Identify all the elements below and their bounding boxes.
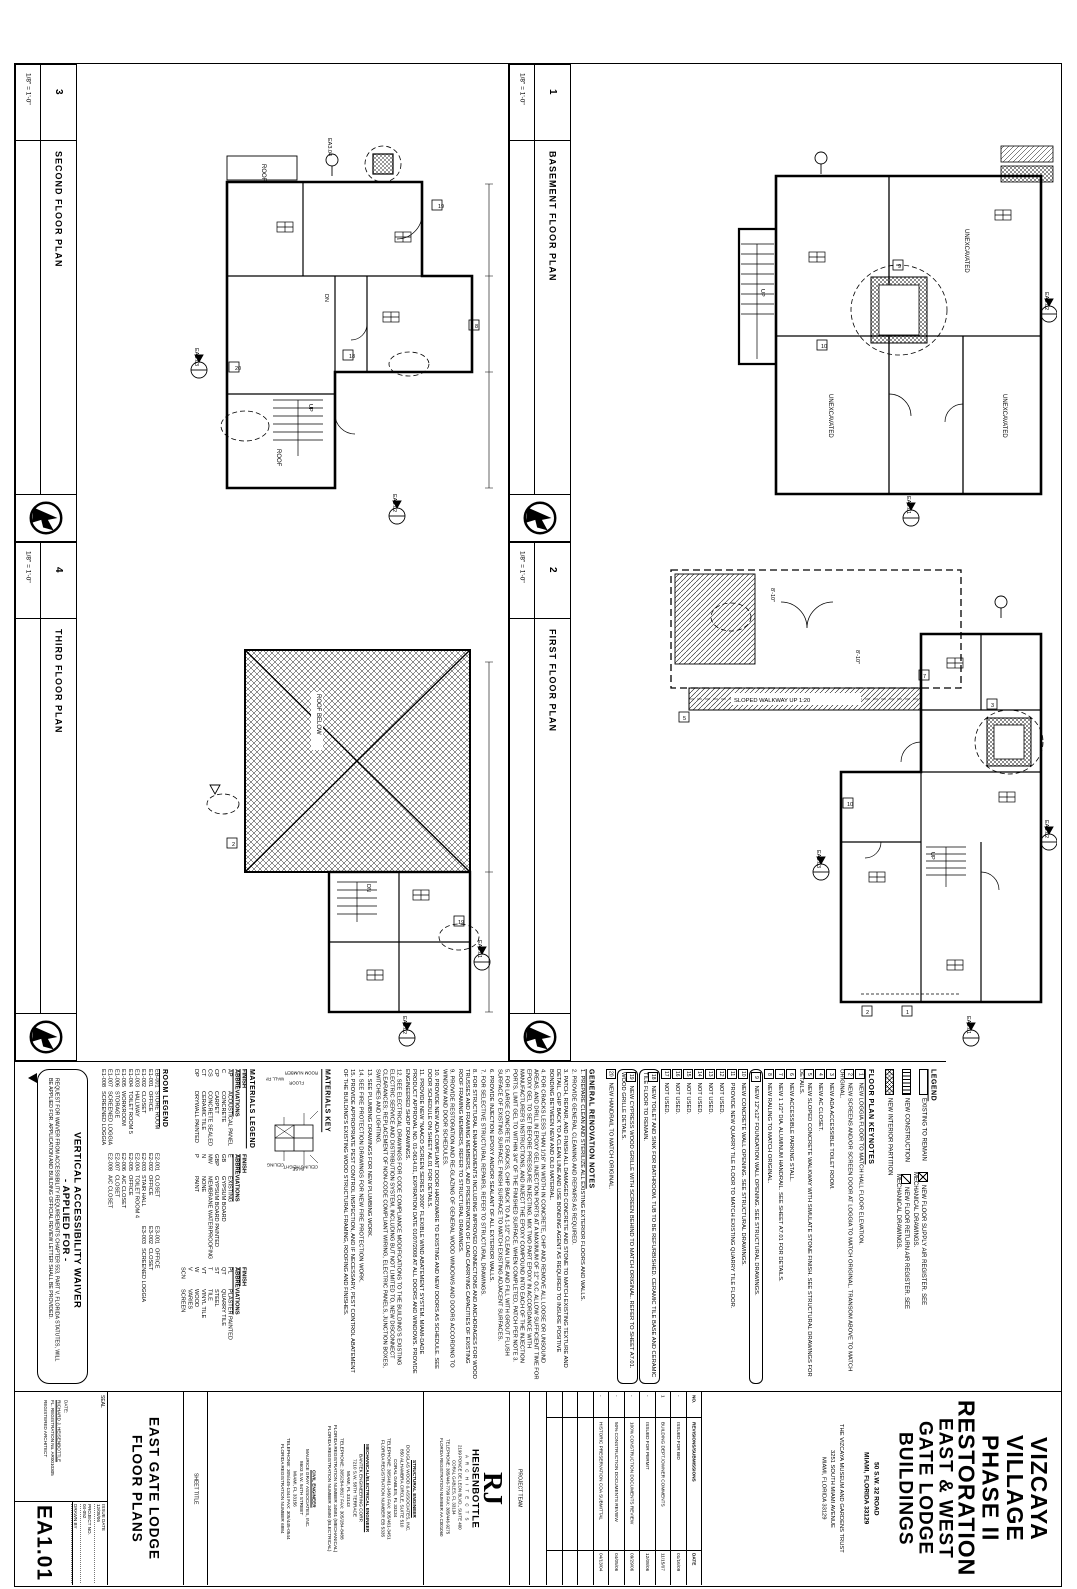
svg-text:CEILING: CEILING xyxy=(266,1163,284,1168)
keynote-number: 9 xyxy=(751,1072,761,1082)
keynote-text: PROVIDE NEW QUARRY TILE FLOOR TO MATCH E… xyxy=(729,1083,735,1309)
north-arrow-icon xyxy=(510,1013,570,1060)
material-entry: CTCERAMIC TILE xyxy=(199,1069,206,1146)
revisions-header: NO. REVISIONS/SUBMISSIONS DATE xyxy=(686,1392,702,1585)
keynote-text: NEW 1 1/2" DIA. ALUMINUM HANDRAIL. SEE S… xyxy=(777,1083,783,1282)
basement-plan-drawing: UNEXCAVATED UNEXCAVATED UNEXCAVATED UP 9… xyxy=(571,64,1061,542)
keynote-text: NEW 12"x12" FOUNDATION WALL OPENING. SEE… xyxy=(753,1086,759,1296)
svg-text:EA3.02: EA3.02 xyxy=(1043,292,1049,310)
svg-text:DN: DN xyxy=(365,884,371,892)
material-entry: CPCARPET xyxy=(212,1069,219,1146)
keynote-item: 20 NEW HANDRAIL TO MATCH ORIGINAL. xyxy=(606,1069,616,1381)
drawing-sheet: 1/8" = 1'-0" 3 SECOND FLOOR PLAN xyxy=(14,63,1062,1587)
materials-legend-section: MATERIALS LEGEND FINISH ABBREVIATIONS AP… xyxy=(179,1069,255,1384)
keynote-number: 16 xyxy=(672,1069,682,1079)
svg-text:EA3.01: EA3.01 xyxy=(476,940,482,958)
svg-text:10: 10 xyxy=(847,802,853,808)
revision-row: - 100% CONSTRUCTION DOCUMENTS REVIEW 09/… xyxy=(624,1392,640,1585)
room-entry: E1-007SCREENED LOGGIA xyxy=(106,1069,113,1145)
materials-legend-col-1: FINISH ABBREVIATIONS APACOUSTICAL PANELC… xyxy=(179,1069,247,1146)
room-entry: E1-002CLOSET xyxy=(139,1069,146,1145)
general-note: 1. PREPARE CLEAN AND STERILIZE ALL EXIST… xyxy=(578,1069,585,1381)
room-entry: E2-002OFFICE xyxy=(146,1153,153,1218)
materials-key-diagram: ROOM NUMBER FLOOR WALL FINISH CEILING HE… xyxy=(266,1069,322,1219)
svg-text:EA3.01: EA3.01 xyxy=(965,1016,971,1034)
room-entry: E2-003STAIR HALL xyxy=(139,1153,146,1218)
material-entry: PPAINT xyxy=(192,1154,199,1259)
project-name-2: EAST & WEST GATE LODGE BUILDINGS xyxy=(895,1398,955,1579)
svg-text:3: 3 xyxy=(991,703,994,709)
legend-title: LEGEND xyxy=(928,1069,936,1382)
room-entry: E1-001OFFICE xyxy=(146,1069,153,1145)
consultant-line: BANTEK ENGINEERING CORP. xyxy=(357,1400,363,1577)
keynote-item: 10 NEW CONCRETE WALL OPENING. SEE STRUCT… xyxy=(738,1069,748,1381)
consultant-line: FLORIDA REGISTRATION NUMBER 34580 (ELECT… xyxy=(326,1400,332,1577)
keynotes-list: 1 NEW LOGGIA FLOOR TO MATCH HALL FLOOR E… xyxy=(606,1069,866,1384)
mep-engineer: MECHANICAL/ELECTRICAL ENGINEER BANTEK EN… xyxy=(326,1400,370,1577)
keynote-item: 14 NOT USED. xyxy=(694,1069,704,1381)
room-legend-group-1: EB-001STORE ROOME1-001OFFICEE1-002CLOSET… xyxy=(99,1069,159,1145)
material-entry: SCNSCREEN xyxy=(179,1267,186,1340)
room-legend-group-2: E2-001CLOSETE2-002OFFICEE2-003STAIR HALL… xyxy=(99,1153,159,1218)
keynote-item: 13 NOT USED. xyxy=(705,1069,715,1381)
room-legend-title: ROOM LEGEND xyxy=(160,1069,168,1382)
supply-register-icon xyxy=(918,1172,928,1182)
civil-engineer: CIVIL ENGINEER MAURICE GRAY ASSOCIATES, … xyxy=(278,1400,316,1577)
general-notes-section: GENERAL RENOVATION NOTES 1. PREPARE CLEA… xyxy=(341,1069,594,1384)
revision-row: - 50% CONSTRUCTION DOCUMENTS REVIEW 04/0… xyxy=(608,1392,624,1585)
keynote-text: NEW ACCESSIBLE PARKING STALL. xyxy=(788,1083,794,1182)
material-entry: STSTEEL xyxy=(212,1267,219,1340)
architect-logo: RJ xyxy=(481,1402,505,1575)
material-entry: MWMEMBRANE WATERPROOFING xyxy=(206,1154,213,1259)
keynote-text: NEW TOILET AND SINK FOR BATHROOM. TUB TO… xyxy=(642,1072,656,1377)
waiver-body: REQUEST FOR WAIVER FROM ACCESSIBILITY RE… xyxy=(47,1078,59,1363)
svg-text:7: 7 xyxy=(923,674,926,680)
interior-partition-swatch-icon xyxy=(885,1069,894,1095)
new-construction-swatch-icon xyxy=(902,1069,911,1095)
keynote-item: 4 NEW AC CLOSET. xyxy=(815,1069,825,1381)
third-floor-title: THIRD FLOOR PLAN xyxy=(54,619,64,734)
structural-engineer: STRUCTURAL ENGINEER DOUGLAS WOOD & ASSOC… xyxy=(379,1400,417,1577)
basement-walls xyxy=(739,146,1057,526)
general-note: 8. FOR STRUCTURAL ENHANCEMENTS INCLUDING… xyxy=(456,1069,477,1381)
material-entry: VTVINYL TILE xyxy=(199,1267,206,1340)
keynote-text: NEW SCREENS AND/OR SCREEN DOOR AT LOGGIA… xyxy=(838,1069,852,1371)
sheet-number-column: SEAL DATE: RICHARD J. HEISENBOTTLE FL. R… xyxy=(15,1392,107,1585)
keynote-text: NOT USED. xyxy=(696,1083,702,1114)
keynote-item: 1 NEW LOGGIA FLOOR TO MATCH HALL FLOOR E… xyxy=(855,1069,865,1381)
material-entry: QTQUARRY TILE xyxy=(219,1267,226,1340)
materials-key-section: MATERIALS KEY ROOM NUMBER FLOOR WALL FIN… xyxy=(266,1069,330,1384)
waiver-line-2: - APPLIED FOR - xyxy=(59,1078,70,1363)
consultant-line: FLORIDA REGISTRATION NUMBER EB 5335 xyxy=(379,1400,385,1577)
svg-text:EA3.03: EA3.03 xyxy=(815,850,821,868)
svg-text:UNEXCAVATED: UNEXCAVATED xyxy=(1001,394,1007,438)
project-owner: THE VIZCAYA MUSEUM AND GARDENS TRUST 325… xyxy=(819,1398,845,1579)
general-note: 12. SEE ELECTRICAL DRAWINGS FOR CODE COM… xyxy=(374,1069,402,1381)
svg-text:ROOF: ROOF xyxy=(260,164,266,182)
svg-text:ROOF: ROOF xyxy=(275,449,281,467)
materials-legend-col-2: FINISH ABBREVIATIONS EEXISTINGGBGYPSUM B… xyxy=(179,1154,247,1259)
svg-text:DN: DN xyxy=(323,294,329,302)
keynote-item: 12 NOT USED. xyxy=(716,1069,726,1381)
legend-item-new-construction: NEW CONSTRUCTION xyxy=(902,1069,911,1162)
room-entry: E1-005WORKROOM xyxy=(119,1069,126,1145)
keynote-number: 19 xyxy=(626,1072,636,1082)
notes-band: LEGEND EXISTING TO REMAIN NEW FLOOR SUPP… xyxy=(15,1061,946,1391)
consultant-line: TELEPHONE: 305/284-8817 FAX: 305/284-848… xyxy=(338,1400,344,1577)
svg-text:BASE: BASE xyxy=(292,1167,304,1172)
consultant-line: MAURICE GRAY ASSOCIATES, INC. xyxy=(304,1400,310,1577)
revision-triangle-icon xyxy=(28,1073,37,1083)
second-floor-scale: 1/8" = 1'-0" xyxy=(25,73,32,105)
general-note: 3. PATCH, REPAIR, AND FINISH ALL DAMAGED… xyxy=(547,1069,568,1381)
material-entry: NNONE xyxy=(199,1154,206,1259)
svg-text:19: 19 xyxy=(458,920,464,926)
general-note: 15. PROVIDE APPROPRIATE PEST CONTROL INS… xyxy=(341,1069,355,1381)
svg-text:UNEXCAVATED: UNEXCAVATED xyxy=(827,394,833,438)
svg-text:2: 2 xyxy=(232,842,235,848)
keynote-item: 2 NEW SCREENS AND/OR SCREEN DOOR AT LOGG… xyxy=(837,1069,854,1381)
sheet-title-line-1: EAST GATE LODGE xyxy=(147,1417,162,1560)
revision-row-empty xyxy=(577,1392,593,1585)
svg-text:UNEXCAVATED: UNEXCAVATED xyxy=(963,229,969,273)
consultant-line: MIAMI, FL 33156 xyxy=(291,1400,297,1577)
revision-row: - ISSUED FOR BID 01/16/09 xyxy=(670,1392,686,1585)
keynote-item: 5 NEW SLOPED CONCRETE WALKWAY WITH SIMUL… xyxy=(797,1069,814,1381)
general-notes-title: GENERAL RENOVATION NOTES xyxy=(586,1069,594,1382)
basement-title-strip: 1/8" = 1'-0" 1 BASEMENT FLOOR PLAN xyxy=(509,64,571,542)
svg-text:8: 8 xyxy=(475,324,478,330)
svg-text:ROOF BELOW: ROOF BELOW xyxy=(315,694,321,735)
architect-subtitle: A R C H I T E C T S xyxy=(465,1402,470,1575)
keynote-item: 6 NEW ACCESSIBLE PARKING STALL. xyxy=(786,1069,796,1381)
revisions-rows: - ISSUED FOR BID 01/16/09 1 BUILDING DEP… xyxy=(593,1392,686,1585)
quad-second-floor: 1/8" = 1'-0" 3 SECOND FLOOR PLAN xyxy=(15,64,509,542)
keynote-number: 14 xyxy=(694,1069,704,1079)
title-block: SEAL DATE: RICHARD J. HEISENBOTTLE FL. R… xyxy=(15,1391,1061,1585)
revision-row-empty xyxy=(546,1392,562,1585)
seal-box: SEAL DATE: RICHARD J. HEISENBOTTLE FL. R… xyxy=(15,1392,107,1502)
svg-text:UP: UP xyxy=(759,289,765,297)
basement-labels: UNEXCAVATED UNEXCAVATED UNEXCAVATED UP 9… xyxy=(759,229,1049,514)
material-entry: DPDRYWALL PAINTED xyxy=(192,1069,199,1146)
keynote-number: 10 xyxy=(738,1069,748,1079)
svg-text:ROOM NUMBER: ROOM NUMBER xyxy=(285,1071,318,1076)
keynote-item: 19 NEW CYPRESS WOOD GRILLE WITH SCREEN B… xyxy=(617,1069,638,1384)
quad-basement: 1/8" = 1'-0" 1 BASEMENT FLOOR PLAN xyxy=(509,64,1061,542)
second-floor-title: SECOND FLOOR PLAN xyxy=(54,141,64,268)
consultant-line: 7210 S.W. 58TH TERRACE xyxy=(351,1400,357,1577)
first-floor-sitework xyxy=(671,570,961,710)
room-entry: E2-004TOILET ROOM 4 xyxy=(133,1153,140,1218)
accessibility-waiver: VERTICAL ACCESSIBILITY WAIVER - APPLIED … xyxy=(28,1069,88,1384)
keynote-text: NOT USED. xyxy=(663,1083,669,1114)
keynote-text: NEW CONCRETE WALL OPENING. SEE STRUCTURA… xyxy=(740,1083,746,1266)
keynote-number: 5 xyxy=(804,1069,814,1079)
keynote-text: NEW ADA ACCESSIBLE TOILET ROOM. xyxy=(828,1083,834,1190)
consultant-line: 8603 S.W. 94TH STREET xyxy=(298,1400,304,1577)
room-legend-group-3: E3-001OFFICEE3-002CLOSETE3-003SCREENED L… xyxy=(99,1226,159,1302)
third-floor-plan-drawing: ROOF BELOW DN 2 19 EA3.02 EA3.01 xyxy=(77,542,508,1061)
consultant-line: TELEPHONE: 305/461-3450 FAX: 305/461-345… xyxy=(385,1400,391,1577)
third-floor-number: 4 xyxy=(53,567,64,573)
consultant-line: FLORIDA REGISTRATION NUMBER 6884 xyxy=(278,1400,284,1577)
general-notes-list: 1. PREPARE CLEAN AND STERILIZE ALL EXIST… xyxy=(341,1069,585,1384)
keynote-number: 13 xyxy=(705,1069,715,1079)
consultant-line: MIAMI, FL 33143 xyxy=(345,1400,351,1577)
sheet-info-fields: ISSUE DATE12/08/06 PROJECT NO.04-052 DRA… xyxy=(72,1502,107,1585)
keynote-text: NEW CYPRESS WOOD GRILLE WITH SCREEN BEHI… xyxy=(620,1072,634,1369)
first-floor-scale: 1/8" = 1'-0" xyxy=(519,551,526,583)
project-name-box: VIZCAYA VILLAGE PHASE II RESTORATION EAS… xyxy=(701,1392,1061,1585)
svg-text:1: 1 xyxy=(906,1010,909,1016)
keynote-item: 17 NOT USED. xyxy=(661,1069,671,1381)
material-entry: CCONCRETE xyxy=(219,1069,226,1146)
svg-text:UP: UP xyxy=(929,852,935,860)
keynote-number: 18 xyxy=(648,1072,658,1082)
svg-text:9: 9 xyxy=(898,264,901,270)
svg-text:SLOPED WALKWAY UP 1:20: SLOPED WALKWAY UP 1:20 xyxy=(734,698,810,704)
consultant-line: FLORIDA REGISTRATION NUMBER 34581 (MECHA… xyxy=(332,1400,338,1577)
sheet-number: EA1.01 xyxy=(15,1502,72,1585)
general-note: 11. PROVIDE NEW "NAACO SCREEN SERIES 200… xyxy=(403,1069,424,1381)
materials-legend-title: MATERIALS LEGEND xyxy=(247,1069,255,1382)
svg-text:20: 20 xyxy=(235,366,241,372)
materials-legend-col-3: FINISH ABBREVIATIONS PLPLASTER PAINTEDQT… xyxy=(179,1267,247,1340)
project-address: 50 S.W. 32 ROAD MIAMI, FLORIDA 33129 xyxy=(861,1398,881,1579)
seal-label: SEAL xyxy=(99,1395,105,1408)
consultants-column: STRUCTURAL ENGINEER DOUGLAS WOOD & ASSOC… xyxy=(207,1392,423,1585)
svg-text:EA3.02: EA3.02 xyxy=(401,1016,407,1034)
architect-seal-info: DATE: RICHARD J. HEISENBOTTLE FL. REGIST… xyxy=(41,1400,69,1476)
keynote-text: NEW RAILING TO MATCH ORIGINAL. xyxy=(766,1083,772,1184)
existing-swatch-icon xyxy=(919,1069,928,1095)
general-note: 13. SEE PLUMBING DRAWINGS FOR NEW PLUMBI… xyxy=(365,1069,372,1381)
general-note: 10. PROVIDE NEW ADA COMPLIANT DOOR HARDW… xyxy=(425,1069,439,1381)
room-entry: E3-003SCREENED LOGGIA xyxy=(139,1226,146,1302)
revision-row-empty xyxy=(562,1392,578,1585)
material-entry: APACOUSTICAL PANEL xyxy=(226,1069,233,1146)
keynote-text: NOT USED. xyxy=(718,1083,724,1114)
materials-key-title: MATERIALS KEY xyxy=(322,1069,330,1382)
consultant-line: DOUGLAS WOOD & ASSOCIATES, INC. xyxy=(404,1400,410,1577)
return-register-icon xyxy=(901,1174,911,1184)
third-floor-roof xyxy=(245,650,470,872)
architect-logo-box: RJ HEISENBOTTLE A R C H I T E C T S 2199… xyxy=(423,1392,509,1585)
sheet-title-box: EAST GATE LODGE FLOOR PLANS xyxy=(107,1392,183,1585)
general-note: 9. PROVIDE RESTORATION AND RE-GLAZING OF… xyxy=(441,1069,455,1381)
sheet-title-label-strip: SHEET TITLE xyxy=(183,1392,207,1585)
keynote-text: NEW SLOPED CONCRETE WALKWAY WITH SIMULAT… xyxy=(798,1069,812,1377)
svg-text:19: 19 xyxy=(438,204,444,210)
consultant-line: 850 ALHAMBRA CIRCLE, SUITE 510 xyxy=(398,1400,404,1577)
architect-address: 2199 PONCE DE LEON BLVD., SUITE 400 CORA… xyxy=(438,1402,463,1575)
material-entry: TTILE xyxy=(206,1267,213,1340)
sheet-title-line-2: FLOOR PLANS xyxy=(130,1417,145,1560)
material-entry: GBGYPSUM BOARD xyxy=(219,1154,226,1259)
svg-text:FLOOR: FLOOR xyxy=(289,1081,304,1086)
legend-item-interior-partition: NEW INTERIOR PARTITION xyxy=(885,1069,894,1175)
keynote-text: NEW AC CLOSET. xyxy=(817,1083,823,1132)
second-floor-title-strip: 1/8" = 1'-0" 3 SECOND FLOOR PLAN xyxy=(15,64,77,542)
general-note: 2. PROVIDE GENERAL CLEANING AND REPAIRS … xyxy=(569,1069,576,1381)
svg-text:5: 5 xyxy=(683,716,686,722)
keynote-item: 7 NEW 1 1/2" DIA. ALUMINUM HANDRAIL. SEE… xyxy=(775,1069,785,1381)
material-entry: VVARIES xyxy=(186,1267,193,1340)
keynote-number: 20 xyxy=(606,1069,616,1079)
legend-item-existing: EXISTING TO REMAIN xyxy=(919,1069,928,1161)
room-legend-section: ROOM LEGEND EB-001STORE ROOME1-001OFFICE… xyxy=(99,1069,168,1384)
svg-text:EA3.02: EA3.02 xyxy=(391,494,397,512)
legend-item-supply-register: NEW FLOOR SUPPLY AIR REGISTER. SEE MECHA… xyxy=(911,1172,928,1322)
svg-text:2: 2 xyxy=(866,1010,869,1016)
keynote-text: NOT USED. xyxy=(685,1083,691,1114)
keynote-item: 15 NOT USED. xyxy=(683,1069,693,1381)
material-entry: EEXISTING xyxy=(226,1154,233,1259)
room-entry: E2-005OFFICE xyxy=(126,1153,133,1218)
general-note: 4. FOR CRACKS LESS THAN 1/16" IN WIDTH I… xyxy=(511,1069,546,1381)
revision-row: 1 BUILDING DEPT./OWNER COMMENTS 11/15/07 xyxy=(655,1392,671,1585)
svg-text:10: 10 xyxy=(821,344,827,350)
basement-scale: 1/8" = 1'-0" xyxy=(519,73,526,105)
general-note: 14. SEE FIRE PROTECTION DRAWINGS FOR NEW… xyxy=(357,1069,364,1381)
material-entry: GBPGYPSUM BOARD PAINTED xyxy=(212,1154,219,1259)
second-floor-number: 3 xyxy=(53,89,64,95)
keynote-number: 11 xyxy=(727,1069,737,1079)
keynote-number: 8 xyxy=(764,1069,774,1079)
basement-title: BASEMENT FLOOR PLAN xyxy=(548,141,558,282)
first-floor-title-strip: 1/8" = 1'-0" 2 FIRST FLOOR PLAN xyxy=(509,542,571,1061)
keynote-number: 2 xyxy=(844,1069,854,1079)
keynote-item: 11 PROVIDE NEW QUARRY TILE FLOOR TO MATC… xyxy=(727,1069,737,1381)
first-floor-number: 2 xyxy=(547,567,558,573)
project-name: VIZCAYA VILLAGE PHASE II RESTORATION xyxy=(954,1398,1051,1579)
architect-name: HEISENBOTTLE xyxy=(470,1402,481,1575)
third-floor-scale: 1/8" = 1'-0" xyxy=(25,551,32,583)
keynotes-section: FLOOR PLAN KEYNOTES 1 NEW LOGGIA FLOOR T… xyxy=(606,1069,874,1384)
svg-text:WALL FINISH: WALL FINISH xyxy=(266,1077,284,1082)
quad-third-floor: 1/8" = 1'-0" 4 THIRD FLOOR PLAN xyxy=(15,542,509,1061)
quad-first-floor: 1/8" = 1'-0" 2 FIRST FLOOR PLAN xyxy=(509,542,1061,1061)
material-entry: WWOOD xyxy=(192,1267,199,1340)
plans-grid: 1/8" = 1'-0" 3 SECOND FLOOR PLAN xyxy=(15,64,1061,1061)
room-entry: E2-007CLOSET xyxy=(113,1153,120,1218)
revision-row: - HISTORIC PRESERVATION COA SUBMITTAL 04… xyxy=(593,1392,609,1585)
keynote-item: 9 NEW 12"x12" FOUNDATION WALL OPENING. S… xyxy=(749,1069,763,1384)
keynote-number: 3 xyxy=(826,1069,836,1079)
room-entry: E1-003HALLWAY xyxy=(133,1069,140,1145)
room-entry: E1-008SCREENED LOGGIA xyxy=(99,1069,106,1145)
keynote-text: NEW HANDRAIL TO MATCH ORIGINAL. xyxy=(608,1083,614,1189)
keynote-text: NOT USED. xyxy=(674,1083,680,1114)
keynote-text: NOT USED. xyxy=(707,1083,713,1114)
svg-text:UP: UP xyxy=(307,404,313,412)
keynote-number: 6 xyxy=(786,1069,796,1079)
room-entry: E2-001CLOSET xyxy=(153,1153,160,1218)
legend-item-return-register: NEW FLOOR RETURN AIR REGISTER. SEE MECHA… xyxy=(894,1174,911,1324)
svg-text:EA3.02: EA3.02 xyxy=(1043,820,1049,838)
revisions-table: NO. REVISIONS/SUBMISSIONS DATE - ISSUED … xyxy=(529,1392,701,1585)
north-arrow-icon xyxy=(16,494,76,541)
general-note: 5. FOR LARGE CONCRETE CRACKS, CHIP BACK … xyxy=(495,1069,509,1381)
second-floor-plan-drawing: 19 8 18 20 ROOF ROOF UP DN EA3.03 EA3.02… xyxy=(77,64,508,542)
keynote-item: 16 NOT USED. xyxy=(672,1069,682,1381)
room-entry: E2-006A/C CLOSET xyxy=(119,1153,126,1218)
basement-number: 1 xyxy=(547,89,558,95)
project-team-strip: PROJECT TEAM xyxy=(509,1392,529,1585)
keynote-number: 1 xyxy=(855,1069,865,1079)
keynote-item: 8 NEW RAILING TO MATCH ORIGINAL. xyxy=(764,1069,774,1381)
room-entry: E1-004TOILET ROOM 5 xyxy=(126,1069,133,1145)
second-floor-walls xyxy=(191,146,493,524)
svg-text:8'-10": 8'-10" xyxy=(854,650,860,664)
first-floor-title: FIRST FLOOR PLAN xyxy=(548,619,558,732)
first-floor-plan-drawing: SLOPED WALKWAY UP 1:20 8'-10" 8'-10" UP … xyxy=(571,542,1061,1061)
svg-text:8'-10": 8'-10" xyxy=(769,588,775,602)
keynote-number: 12 xyxy=(716,1069,726,1079)
consultant-line: TELEPHONE: 305/445-1344 FAX: 305/445-054… xyxy=(285,1400,291,1577)
revision-row: - ISSUED FOR PERMIT 12/08/06 xyxy=(639,1392,655,1585)
material-entry: PLPLASTER PAINTED xyxy=(226,1267,233,1340)
waiver-line-1: VERTICAL ACCESSIBILITY WAIVER xyxy=(71,1078,82,1363)
room-entry: EB-001STORE ROOM xyxy=(153,1069,160,1145)
material-entry: CSCONCRETE SEALED xyxy=(206,1069,213,1146)
room-entry: E1-006STORAGE xyxy=(113,1069,120,1145)
keynote-item: 3 NEW ADA ACCESSIBLE TOILET ROOM. xyxy=(826,1069,836,1381)
svg-text:EA3.04: EA3.04 xyxy=(326,138,332,156)
third-floor-title-strip: 1/8" = 1'-0" 4 THIRD FLOOR PLAN xyxy=(15,542,77,1061)
svg-text:EA3.03: EA3.03 xyxy=(193,348,199,366)
keynote-number: 4 xyxy=(815,1069,825,1079)
keynote-number: 17 xyxy=(661,1069,671,1079)
room-entry: E2-008A/C CLOSET xyxy=(106,1153,113,1218)
room-entry: E3-002CLOSET xyxy=(146,1226,153,1302)
keynote-item: 18 NEW TOILET AND SINK FOR BATHROOM. TUB… xyxy=(639,1069,660,1384)
consultant-line: CORAL GABLES, FL 33134 xyxy=(392,1400,398,1577)
room-entry: E3-001OFFICE xyxy=(153,1226,160,1302)
general-note: 7. FOR SELECTIVE STRUCTURAL REPAIRS, REF… xyxy=(478,1069,485,1381)
keynote-number: 7 xyxy=(775,1069,785,1079)
legend-section: LEGEND EXISTING TO REMAIN NEW FLOOR SUPP… xyxy=(885,1069,937,1384)
north-arrow-icon xyxy=(510,494,570,541)
keynotes-title: FLOOR PLAN KEYNOTES xyxy=(865,1069,873,1382)
keynote-number: 15 xyxy=(683,1069,693,1079)
keynote-text: NEW LOGGIA FLOOR TO MATCH HALL FLOOR ELE… xyxy=(857,1083,863,1245)
north-arrow-icon xyxy=(16,1013,76,1060)
svg-text:EA3.01: EA3.01 xyxy=(905,496,911,514)
general-note: 6. PROVIDE INJECTION EPOXY AND/OR SEALAN… xyxy=(487,1069,494,1381)
svg-text:18: 18 xyxy=(349,354,355,360)
